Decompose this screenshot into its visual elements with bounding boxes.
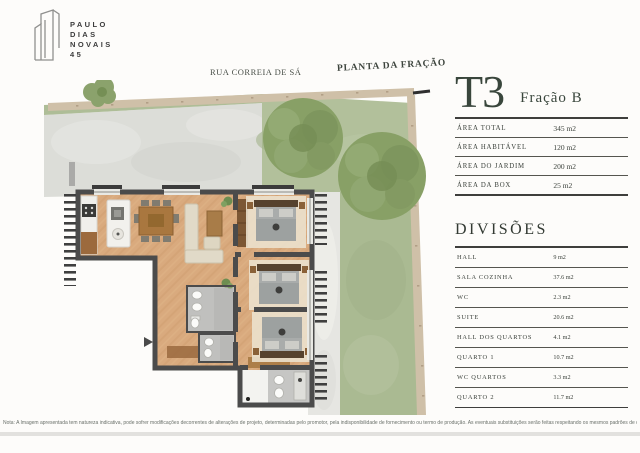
side-garden (340, 192, 418, 415)
division-row: WC 2.3 m2 (455, 288, 628, 308)
division-value: 11.7 m2 (553, 394, 626, 401)
divisions-title: DIVISÕES (455, 221, 628, 239)
floor-plan (36, 80, 456, 415)
division-label: HALL (457, 254, 553, 261)
division-value: 4.1 m2 (553, 334, 626, 341)
division-row: HALL DOS QUARTOS 4.1 m2 (455, 328, 628, 348)
divisions-table: HALL 9 m2 SALA COZINHA 37.6 m2 WC 2.3 m2… (455, 246, 628, 408)
division-label: WC (457, 294, 553, 301)
house (64, 185, 327, 405)
area-value: 120 m2 (553, 143, 626, 152)
area-label: ÁREA DO JARDIM (457, 163, 553, 170)
hatch-right-2 (315, 268, 327, 326)
bed-quarto-2 (252, 312, 311, 362)
area-row: ÁREA HABITÁVEL 120 m2 (455, 138, 628, 157)
unit-info-panel: T3 Fração B ÁREA TOTAL 345 m2 ÁREA HABIT… (455, 70, 628, 408)
bed-quarto-1 (249, 260, 309, 310)
division-value: 37.6 m2 (553, 274, 626, 281)
division-label: WC QUARTOS (457, 374, 553, 381)
division-label: SALA COZINHA (457, 274, 553, 281)
division-label: HALL DOS QUARTOS (457, 334, 553, 341)
hatch-left (64, 194, 76, 286)
area-value: 345 m2 (553, 124, 626, 133)
areas-table: ÁREA TOTAL 345 m2 ÁREA HABITÁVEL 120 m2 … (455, 117, 628, 196)
area-value: 25 m2 (553, 181, 626, 190)
site-plan-drawing (36, 80, 456, 415)
disclaimer-note: Nota: A Imagem apresentada tem natureza … (3, 420, 637, 426)
hatch-right-1 (315, 193, 327, 245)
building-icon (26, 8, 64, 66)
brochure-page: PAULO DIAS NOVAIS 45 RUA CORREIA DE SÁ P… (0, 0, 640, 453)
coffee-table (207, 211, 222, 236)
division-value: 9 m2 (553, 254, 626, 261)
entrance-arrow-icon (144, 337, 153, 347)
brand-line-2: DIAS (70, 30, 113, 40)
division-row: QUARTO 1 10.7 m2 (455, 348, 628, 368)
division-label: QUARTO 2 (457, 394, 553, 401)
division-row: WC QUARTOS 3.3 m2 (455, 368, 628, 388)
area-label: ÁREA TOTAL (457, 125, 553, 132)
division-label: QUARTO 1 (457, 354, 553, 361)
area-row: ÁREA TOTAL 345 m2 (455, 119, 628, 138)
brand-logo: PAULO DIAS NOVAIS 45 (26, 8, 113, 66)
plan-title: PLANTA DA FRAÇÃO (337, 58, 447, 74)
division-value: 3.3 m2 (553, 374, 626, 381)
hatch-right-3 (315, 354, 327, 402)
bottom-divider (0, 432, 640, 436)
area-row: ÁREA DO JARDIM 200 m2 (455, 157, 628, 176)
patio-bench (69, 162, 75, 186)
division-row: HALL 9 m2 (455, 248, 628, 268)
area-label: ÁREA HABITÁVEL (457, 144, 553, 151)
unit-fraction: Fração B (520, 90, 583, 114)
tree-icon-left (263, 98, 343, 178)
division-row: SUITE 20.6 m2 (455, 308, 628, 328)
brand-line-1: PAULO (70, 20, 113, 30)
division-value: 10.7 m2 (553, 354, 626, 361)
brand-name: PAULO DIAS NOVAIS 45 (70, 20, 113, 66)
division-label: SUITE (457, 314, 553, 321)
unit-type: T3 (455, 70, 504, 114)
area-label: ÁREA DA BOX (457, 182, 553, 189)
tree-icon-right (338, 132, 426, 220)
division-row: QUARTO 2 11.7 m2 (455, 388, 628, 408)
brand-line-3: NOVAIS (70, 40, 113, 50)
street-label: RUA CORREIA DE SÁ (210, 67, 301, 77)
patio-terrace (44, 103, 266, 197)
area-row: ÁREA DA BOX 25 m2 (455, 176, 628, 196)
gate-mark (413, 91, 430, 93)
division-value: 20.6 m2 (553, 314, 626, 321)
brand-line-4: 45 (70, 50, 113, 60)
area-value: 200 m2 (553, 162, 626, 171)
division-row: SALA COZINHA 37.6 m2 (455, 268, 628, 288)
division-value: 2.3 m2 (553, 294, 626, 301)
bed-suite (246, 196, 306, 248)
